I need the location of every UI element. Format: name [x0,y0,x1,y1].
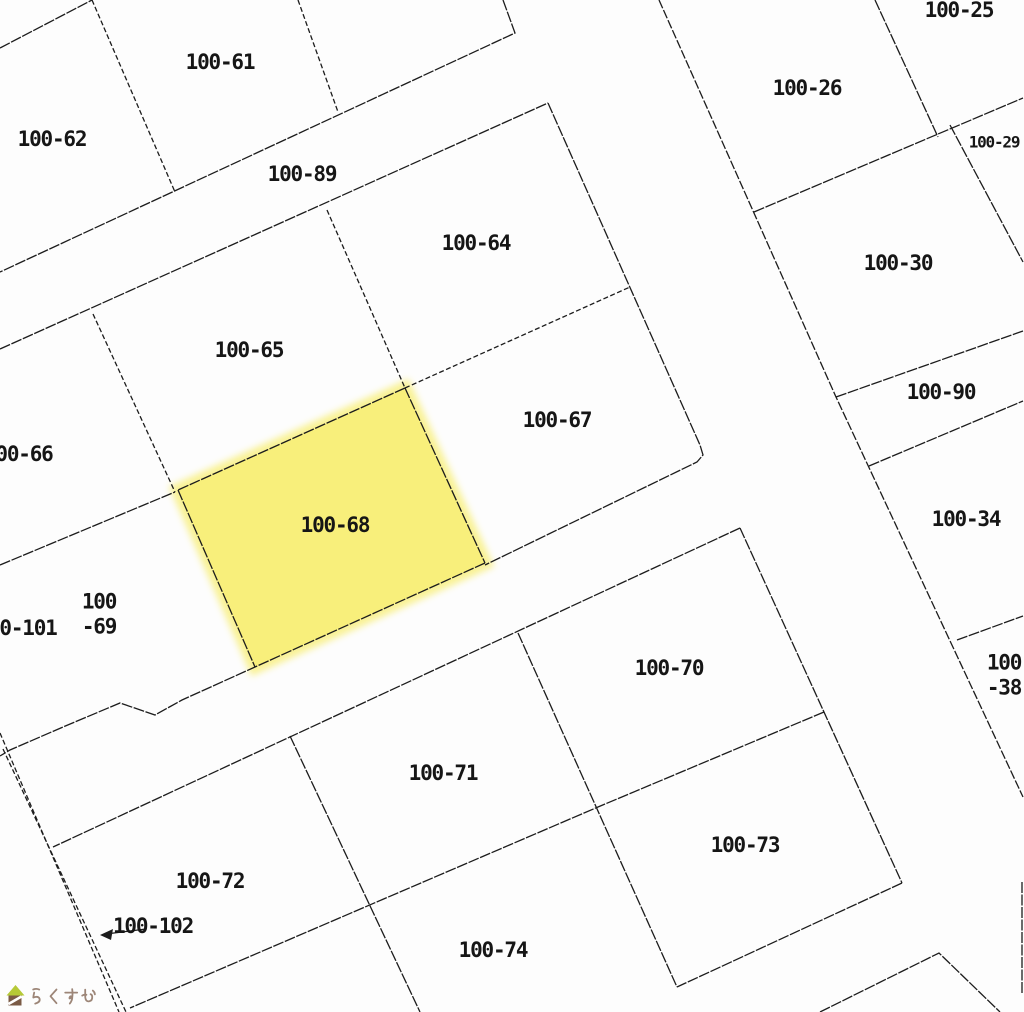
parcel-label-100-34: 100-34 [932,507,1001,531]
parcel-label-100-70: 100-70 [635,656,704,680]
parcel-label-100-64: 100-64 [442,231,511,255]
parcel-label-100-62: 100-62 [18,127,87,151]
parcel-label-100-102: 100-102 [113,914,193,938]
parcel-label-100-69: 100-69 [82,590,117,639]
map-viewport: 100-25100-26100-29100-30100-61100-62100-… [0,0,1024,1012]
parcel-label-100-72: 100-72 [176,869,245,893]
cadastral-map: 100-25100-26100-29100-30100-61100-62100-… [0,0,1024,1012]
parcel-label-100-38: 100-38 [987,651,1022,700]
parcel-label-100-65: 100-65 [215,338,284,362]
parcel-label-100-68: 100-68 [301,513,370,537]
parcel-label-100-101: 0-101 [0,616,57,640]
parcel-label-100-67: 100-67 [523,408,592,432]
parcel-label-100-89: 100-89 [268,162,337,186]
parcel-label-100-71: 100-71 [409,761,478,785]
parcel-label-100-66: 00-66 [0,442,53,466]
parcel-label-100-90: 100-90 [907,380,976,404]
map-background [0,0,1024,1012]
parcel-label-100-30: 100-30 [864,251,933,275]
parcel-label-100-25: 100-25 [925,0,994,22]
parcel-label-100-74: 100-74 [459,938,528,962]
parcel-label-100-61: 100-61 [186,50,255,74]
parcel-label-100-29: 100-29 [969,133,1020,152]
parcel-label-100-73: 100-73 [711,833,780,857]
parcel-label-100-26: 100-26 [773,76,842,100]
